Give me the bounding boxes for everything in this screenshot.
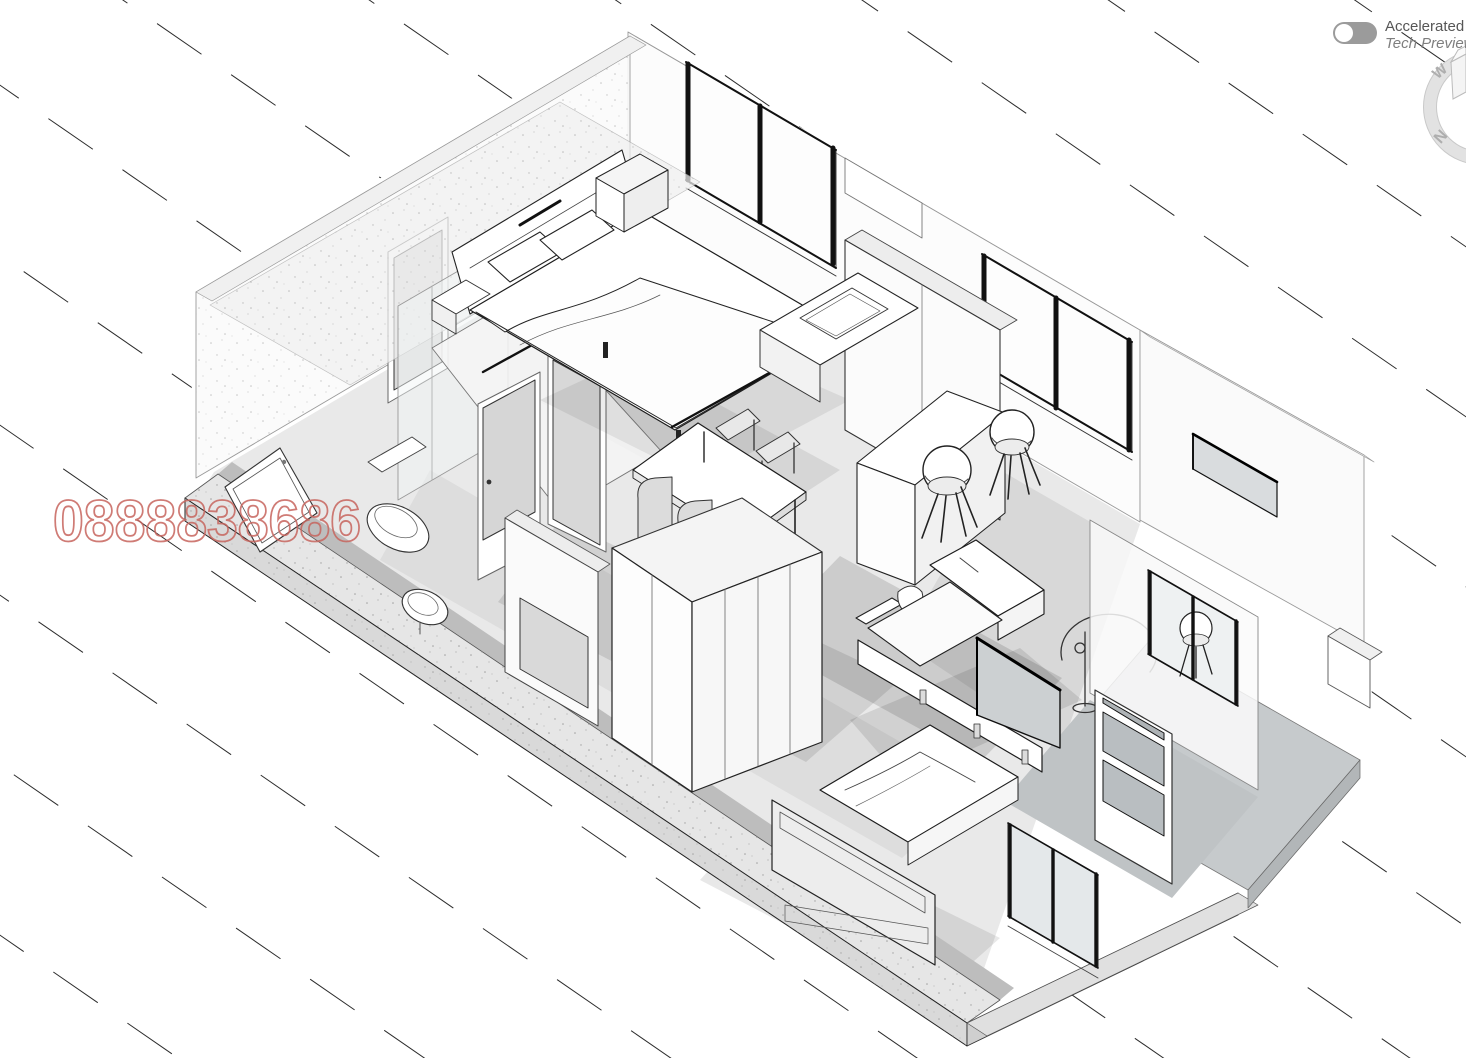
watermark-text: 0888838686	[53, 489, 361, 554]
revit-3d-viewport[interactable]: W N 0888838686 Accelerated Tech Preview	[0, 0, 1466, 1058]
wardrobe	[612, 498, 822, 792]
apartment-3d-model	[185, 28, 1382, 1046]
navigation-compass[interactable]: W N	[1424, 46, 1466, 165]
accelerated-toggle[interactable]	[1333, 22, 1377, 44]
accelerated-label: Accelerated Tech Preview	[1385, 18, 1466, 52]
toggle-knob-icon	[1335, 24, 1353, 42]
accelerated-tech-preview-control: Accelerated Tech Preview	[1333, 18, 1466, 52]
accelerated-label-line1: Accelerated	[1385, 18, 1466, 35]
accelerated-label-line2: Tech Preview	[1385, 35, 1466, 52]
